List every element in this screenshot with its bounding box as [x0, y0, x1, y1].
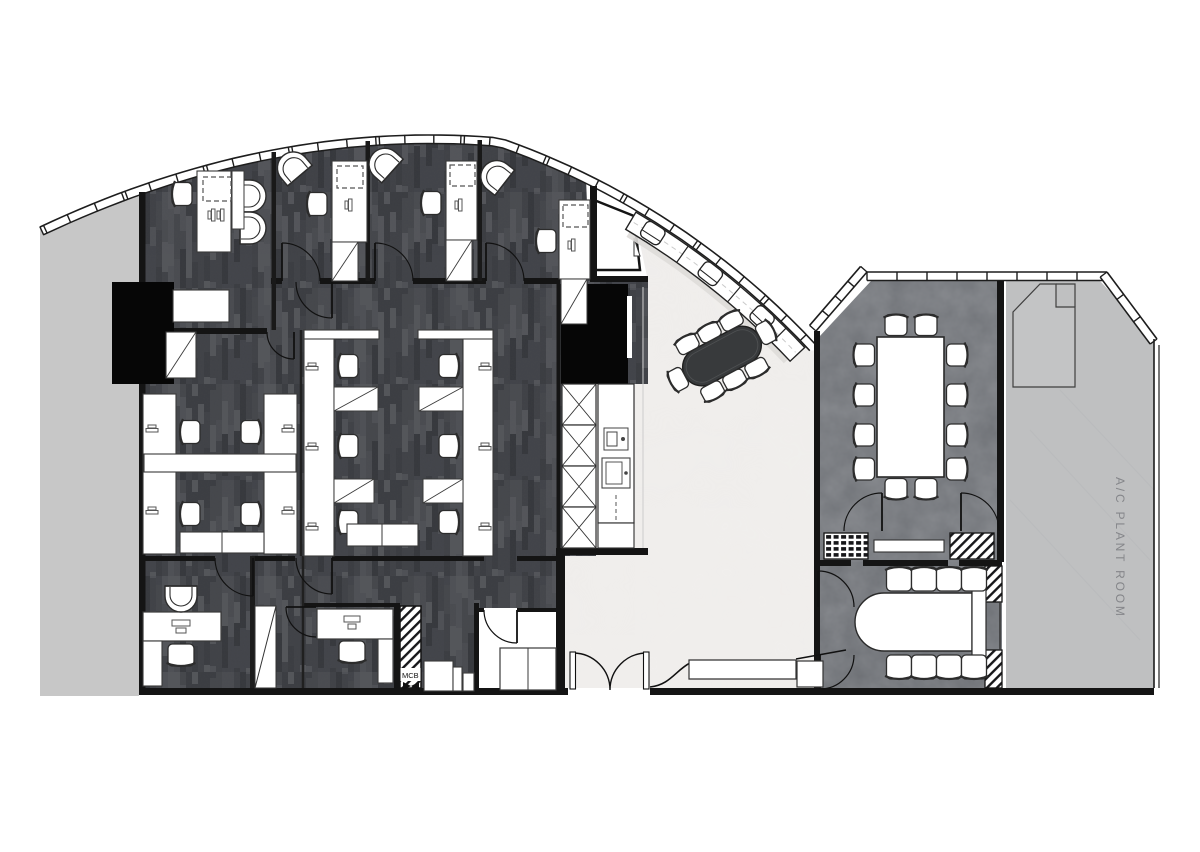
svg-text:MCB: MCB: [402, 671, 419, 680]
svg-text:A/C PLANT ROOM: A/C PLANT ROOM: [1113, 477, 1127, 619]
